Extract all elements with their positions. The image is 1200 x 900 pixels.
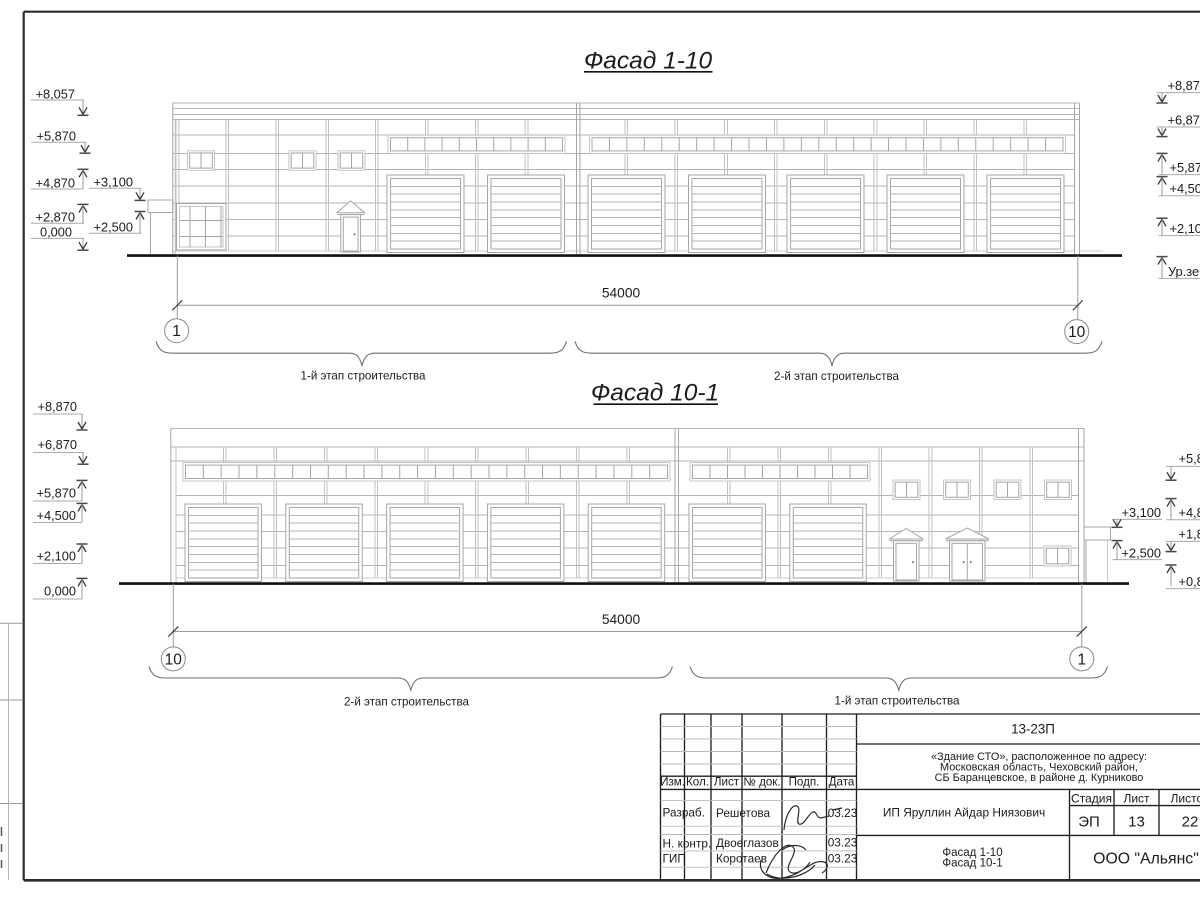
svg-text:Фасад 1-10: Фасад 1-10: [584, 48, 713, 75]
svg-text:Н. контр.: Н. контр.: [663, 837, 712, 851]
svg-text:+0,870: +0,870: [1179, 574, 1200, 589]
svg-text:2-й этап строительства: 2-й этап строительства: [344, 696, 469, 709]
svg-text:Кол.: Кол.: [686, 776, 709, 789]
svg-text:+5,870: +5,870: [1179, 451, 1200, 466]
svg-text:+6,870: +6,870: [38, 437, 78, 452]
svg-text:1: 1: [172, 323, 181, 340]
svg-text:Коротаев: Коротаев: [716, 852, 767, 866]
svg-text:Лист: Лист: [1123, 792, 1150, 806]
svg-text:Ур.земли: Ур.земли: [1168, 264, 1200, 279]
svg-text:1-й этап строительства: 1-й этап строительства: [301, 370, 426, 383]
svg-text:+6,870: +6,870: [1168, 113, 1200, 128]
svg-text:1-й этап строительства: 1-й этап строительства: [835, 695, 960, 708]
svg-text:СБ Баранцевское, в районе д. К: СБ Баранцевское, в районе д. Курниково: [935, 772, 1144, 784]
svg-text:22: 22: [1182, 814, 1199, 831]
svg-text:0,000: 0,000: [44, 584, 76, 599]
svg-text:+4,500: +4,500: [1170, 181, 1200, 196]
svg-text:Изм.: Изм.: [660, 776, 685, 789]
svg-text:+5,870: +5,870: [1170, 160, 1200, 175]
svg-text:13-23П: 13-23П: [1011, 722, 1055, 737]
svg-text:Фасад 10-1: Фасад 10-1: [591, 380, 719, 407]
svg-text:10: 10: [165, 651, 183, 668]
svg-text:+2,500: +2,500: [94, 220, 134, 235]
svg-text:Фасад 10-1: Фасад 10-1: [942, 858, 1002, 870]
svg-text:Лист: Лист: [714, 776, 740, 789]
svg-text:03.23: 03.23: [828, 836, 858, 850]
svg-text:Подп.: Подп.: [789, 776, 820, 789]
svg-text:+2,870: +2,870: [36, 210, 76, 225]
svg-text:Дата: Дата: [829, 776, 855, 789]
svg-text:+4,870: +4,870: [1179, 505, 1200, 520]
svg-text:10: 10: [1068, 324, 1086, 341]
svg-text:ИП Яруллин Айдар Ниязович: ИП Яруллин Айдар Ниязович: [883, 806, 1045, 820]
svg-text:+8,870: +8,870: [38, 399, 78, 414]
svg-text:+5,870: +5,870: [37, 129, 77, 144]
svg-text:+2,100: +2,100: [37, 549, 77, 564]
svg-text:2-й этап строительства: 2-й этап строительства: [774, 370, 899, 383]
svg-text:ООО "Альянс": ООО "Альянс": [1093, 851, 1199, 868]
svg-text:+4,870: +4,870: [36, 175, 76, 190]
svg-text:ЭП: ЭП: [1078, 814, 1100, 831]
svg-text:№ док.: № док.: [743, 776, 780, 789]
svg-text:Разраб.: Разраб.: [663, 806, 705, 820]
svg-text:+5,870: +5,870: [37, 486, 77, 501]
svg-text:+2,500: +2,500: [1122, 546, 1162, 561]
svg-text:03.23: 03.23: [828, 852, 858, 866]
svg-text:ГИП: ГИП: [663, 852, 686, 866]
svg-text:+1,870: +1,870: [1179, 527, 1200, 542]
svg-text:+8,870: +8,870: [1168, 78, 1200, 93]
svg-text:Двоеглазов: Двоеглазов: [716, 836, 779, 850]
svg-text:+3,100: +3,100: [94, 174, 134, 189]
svg-text:Стадия: Стадия: [1071, 792, 1112, 806]
svg-text:54000: 54000: [602, 286, 641, 301]
svg-text:1: 1: [1077, 651, 1086, 668]
svg-text:Листов: Листов: [1171, 792, 1200, 806]
svg-text:54000: 54000: [602, 612, 641, 627]
svg-text:+2,100: +2,100: [1170, 221, 1200, 236]
svg-text:13: 13: [1128, 814, 1145, 831]
svg-text:0,000: 0,000: [40, 225, 72, 240]
svg-text:+4,500: +4,500: [37, 508, 77, 523]
svg-text:03.23: 03.23: [828, 806, 858, 820]
svg-text:Решетова: Решетова: [716, 806, 771, 820]
svg-text:+3,100: +3,100: [1122, 505, 1162, 520]
svg-text:+8,057: +8,057: [36, 87, 76, 102]
